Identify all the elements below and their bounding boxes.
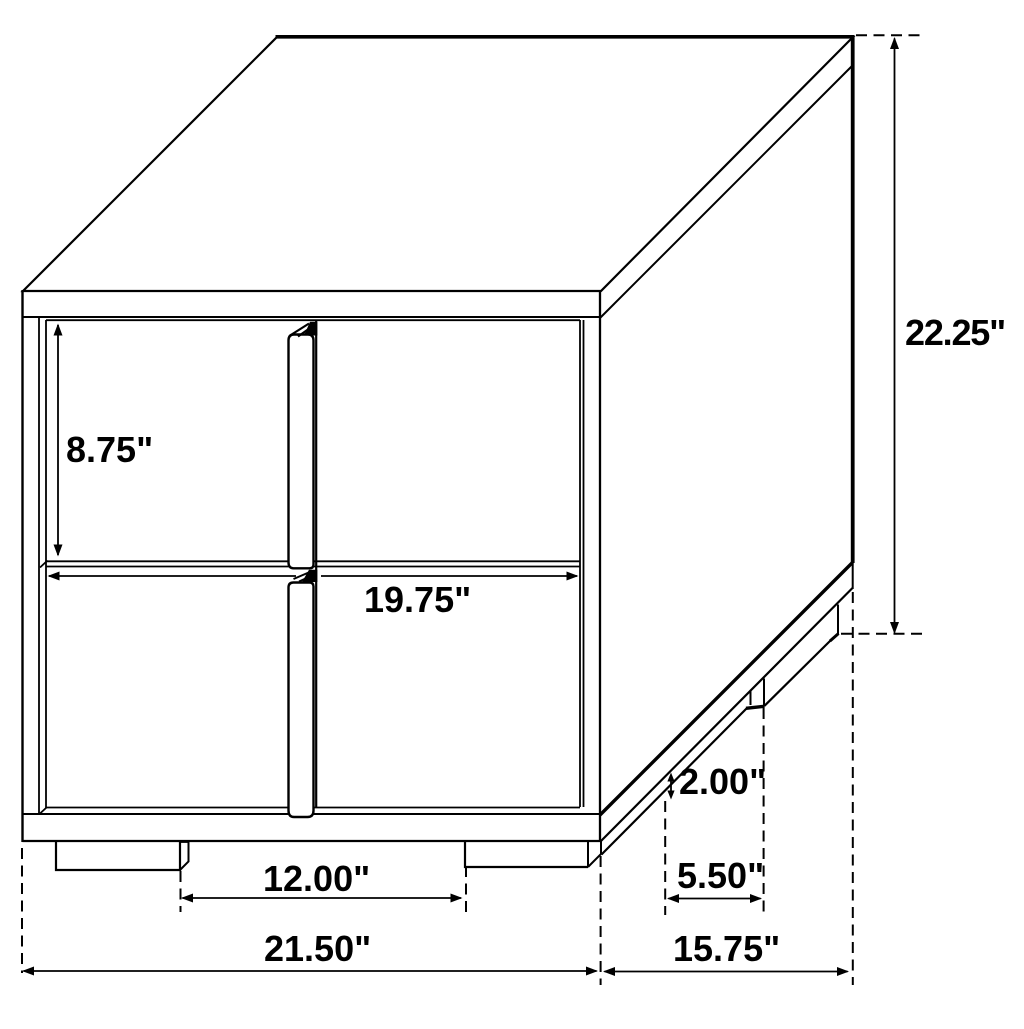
svg-text:22.25": 22.25" [905, 312, 1005, 353]
svg-text:5.50": 5.50" [677, 855, 764, 896]
svg-text:19.75": 19.75" [364, 579, 471, 620]
svg-text:8.75": 8.75" [66, 429, 153, 470]
svg-text:2.00": 2.00" [679, 761, 766, 802]
svg-text:15.75": 15.75" [673, 928, 780, 969]
svg-text:12.00": 12.00" [263, 858, 370, 899]
svg-text:21.50": 21.50" [264, 928, 371, 969]
